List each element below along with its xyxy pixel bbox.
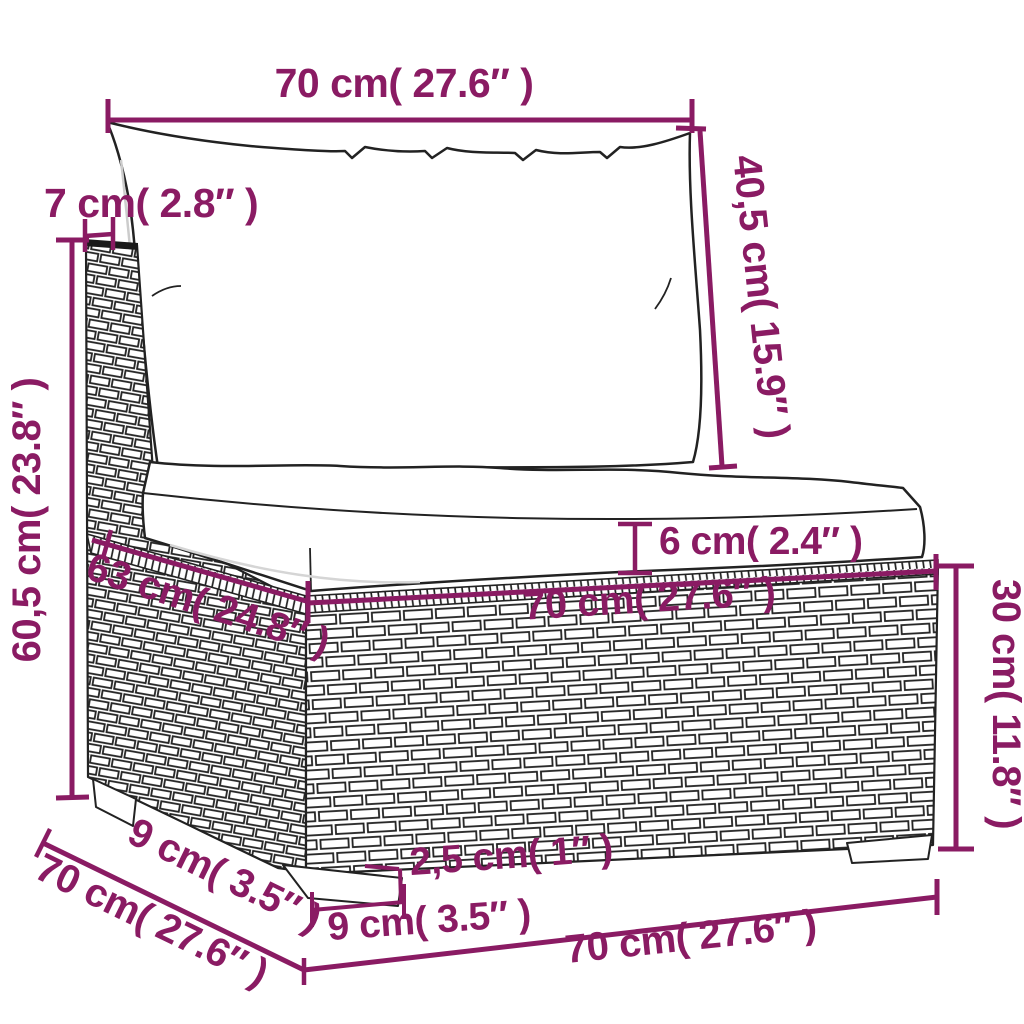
dim-base-width-label: 70 cm( 27.6″ ) [563, 902, 819, 972]
dim-base-height [938, 566, 974, 849]
dim-total-height-label: 60,5 cm( 23.8″ ) [5, 378, 49, 663]
back-cushion [107, 122, 701, 497]
dim-base-height-label: 30 cm( 11.8″ ) [984, 579, 1024, 829]
dim-post-width-label: 7 cm( 2.8″ ) [44, 180, 258, 226]
dim-back-height-label: 40,5 cm( 15.9″ ) [724, 153, 798, 441]
diagram-canvas: 70 cm( 27.6″ ) 7 cm( 2.8″ ) 40,5 cm( 15.… [0, 0, 1024, 1024]
back-cushion-outline [107, 122, 701, 497]
dimension-diagram: 70 cm( 27.6″ ) 7 cm( 2.8″ ) 40,5 cm( 15.… [0, 0, 1024, 1024]
dim-top-width-label: 70 cm( 27.6″ ) [275, 60, 534, 106]
dim-total-height [56, 240, 89, 798]
dim-cushion-thickness-label: 6 cm( 2.4″ ) [659, 520, 862, 563]
